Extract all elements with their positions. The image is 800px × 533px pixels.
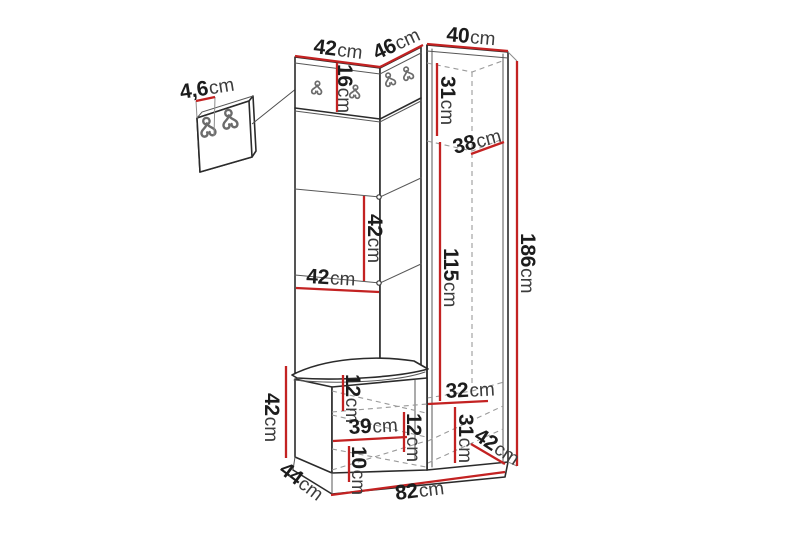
dim-label-cabinet-top-height: 31cm (436, 76, 459, 125)
dim-label-bench-inner-width: 39cm (348, 413, 398, 439)
diagram-canvas: 4,6cm 42cm 46cm 40cm 16cm 31cm 38cm 42cm… (0, 0, 800, 533)
dim-label-total-height: 186cm (516, 233, 539, 293)
ext-line (196, 101, 197, 118)
dim-label-column-width: 42cm (306, 265, 356, 291)
ext-line (508, 52, 517, 61)
furniture-dimension-diagram: 4,6cm 42cm 46cm 40cm 16cm 31cm 38cm 42cm… (0, 0, 800, 533)
bench-side (295, 379, 332, 473)
shelf-joint (377, 281, 381, 285)
dim-label-top-width-right: 40cm (446, 23, 497, 50)
corner-panel (380, 47, 421, 368)
dim-label-hook-panel-height: 16cm (333, 64, 356, 113)
dim-label-total-width: 82cm (394, 476, 446, 505)
dim-label-shelf-spacing: 42cm (363, 214, 386, 263)
dim-label-bench-inner-height: 12cm (402, 413, 425, 462)
wall-hook-panel-detail (197, 96, 256, 172)
dim-label-cabinet-inner-height: 115cm (439, 248, 462, 307)
dim-label-bench-height: 42cm (260, 393, 283, 442)
shelf-joint (377, 195, 381, 199)
dim-label-cabinet-bottom-width: 32cm (445, 377, 495, 403)
dim-label-bench-plinth-height: 10cm (347, 446, 370, 495)
dim-label-hook-spacing: 4,6cm (178, 73, 236, 104)
